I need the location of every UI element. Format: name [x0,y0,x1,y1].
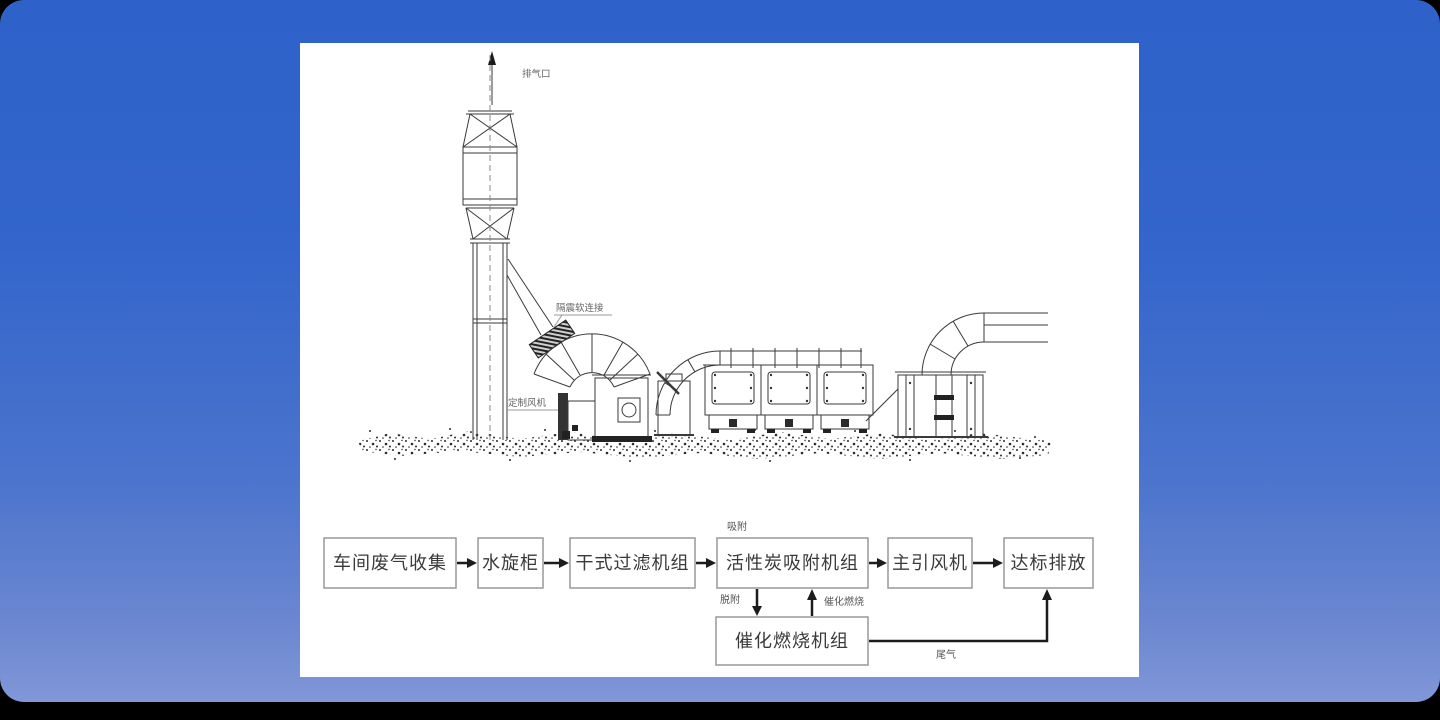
custom-fan-callout: 定制风机 [506,397,558,410]
flow-arrow-1 [457,558,477,568]
flow-label-main-draft-fan: 主引风机 [892,553,968,573]
process-flowchart: 车间废气收集 水旋柜 干式过滤机组 活性炭吸附机组 主引风机 达标排放 催化燃烧… [324,520,1093,665]
process-diagram-svg: 排气口 [300,43,1139,677]
flow-arrow-4 [869,558,887,568]
flex-connection-label: 隔震软连接 [556,302,604,314]
flow-arrow-3 [696,558,716,568]
flow-label-carbon-adsorption-unit: 活性炭吸附机组 [726,553,859,573]
screenshot-stage: 排气口 [0,0,1440,720]
adsorber-boxes [703,365,873,433]
exhaust-arrow [488,51,496,105]
main-fan-unit-drawing [866,372,988,437]
chimney-stack [473,55,507,440]
flow-arrow-2 [544,558,569,568]
exhaust-outlet-label: 排气口 [522,68,551,80]
blue-gradient-background: 排气口 [0,0,1440,702]
flow-label-water-spray-cabinet: 水旋柜 [482,553,539,573]
duct-elbow-3 [922,313,984,375]
edge-label-adsorb: 吸附 [727,520,747,533]
edge-label-tail-gas: 尾气 [936,648,956,661]
flow-label-compliant-discharge: 达标排放 [1011,553,1087,573]
edge-label-desorb: 脱附 [720,593,740,606]
diagonal-duct [507,259,553,335]
edge-label-catalytic: 催化燃烧 [824,595,864,608]
flow-arrow-5 [973,558,1003,568]
custom-fan-label: 定制风机 [508,397,547,409]
fan-motor-block [562,431,570,439]
flow-arrow-tail-gas [869,589,1052,641]
flow-label-catalytic-combustion-unit: 催化燃烧机组 [735,631,849,651]
diagram-white-panel: 排气口 [300,43,1139,677]
adsorber-box-2 [761,365,817,433]
fan-base [592,436,652,442]
ground-texture [358,428,1052,462]
custom-fan-unit [558,375,652,442]
outlet-duct [984,313,1048,342]
flow-arrow-catalytic-up [807,589,817,616]
flow-label-dry-filter-unit: 干式过滤机组 [576,553,690,573]
adsorber-box-3 [817,365,873,433]
duct-elbow-2 [656,351,720,415]
flow-arrow-desorb-down [752,589,762,616]
adsorber-box-1 [703,365,763,433]
inline-tank [654,372,694,435]
equipment-line-drawing: 排气口 [358,51,1052,462]
flow-label-workshop-gas-collection: 车间废气收集 [333,553,447,573]
